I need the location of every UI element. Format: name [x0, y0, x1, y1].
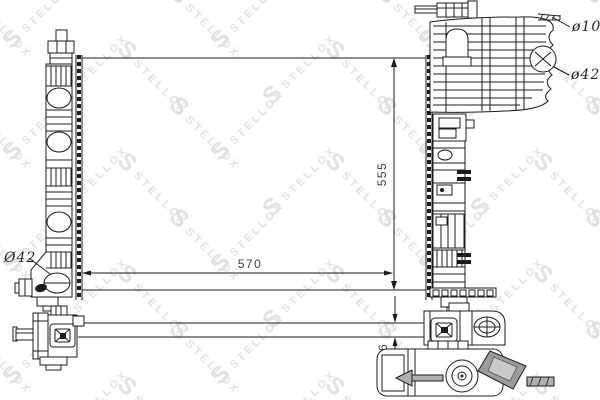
expansion-tank [415, 1, 560, 112]
svg-text:SSTELLOX: SSTELLOX [580, 91, 600, 176]
sensor-dia-label: ø42 [570, 67, 600, 83]
dim-width-label: 570 [238, 257, 263, 271]
overflow-pipe [415, 6, 437, 13]
pipe-dia-label: ø10 [571, 19, 600, 35]
radiator-technical-drawing: SSTELLOXSSTELLOXSSTELLOXSSTELLOXSSTELLOX… [0, 0, 600, 400]
filler-cap [437, 1, 477, 18]
svg-text:SSTELLOX: SSTELLOX [580, 203, 600, 288]
dim-height-label: 555 [375, 162, 389, 187]
svg-text:SSTELLOX: SSTELLOX [205, 81, 290, 166]
svg-text:SSTELLOX: SSTELLOX [580, 315, 600, 400]
front-view: 555 570 Ø42 ø10 ø42 [3, 1, 600, 312]
technical-drawing-canvas: SSTELLOXSSTELLOXSSTELLOXSSTELLOXSSTELLOX… [0, 0, 600, 400]
svg-text:SSTELLOX: SSTELLOX [205, 305, 290, 390]
outlet-dia-label: Ø42 [3, 250, 36, 266]
svg-text:SSTELLOX: SSTELLOX [205, 0, 290, 54]
cap-bottom-view [446, 360, 478, 392]
sensor-port-dia42 [530, 46, 556, 72]
side-pipe [527, 377, 554, 386]
